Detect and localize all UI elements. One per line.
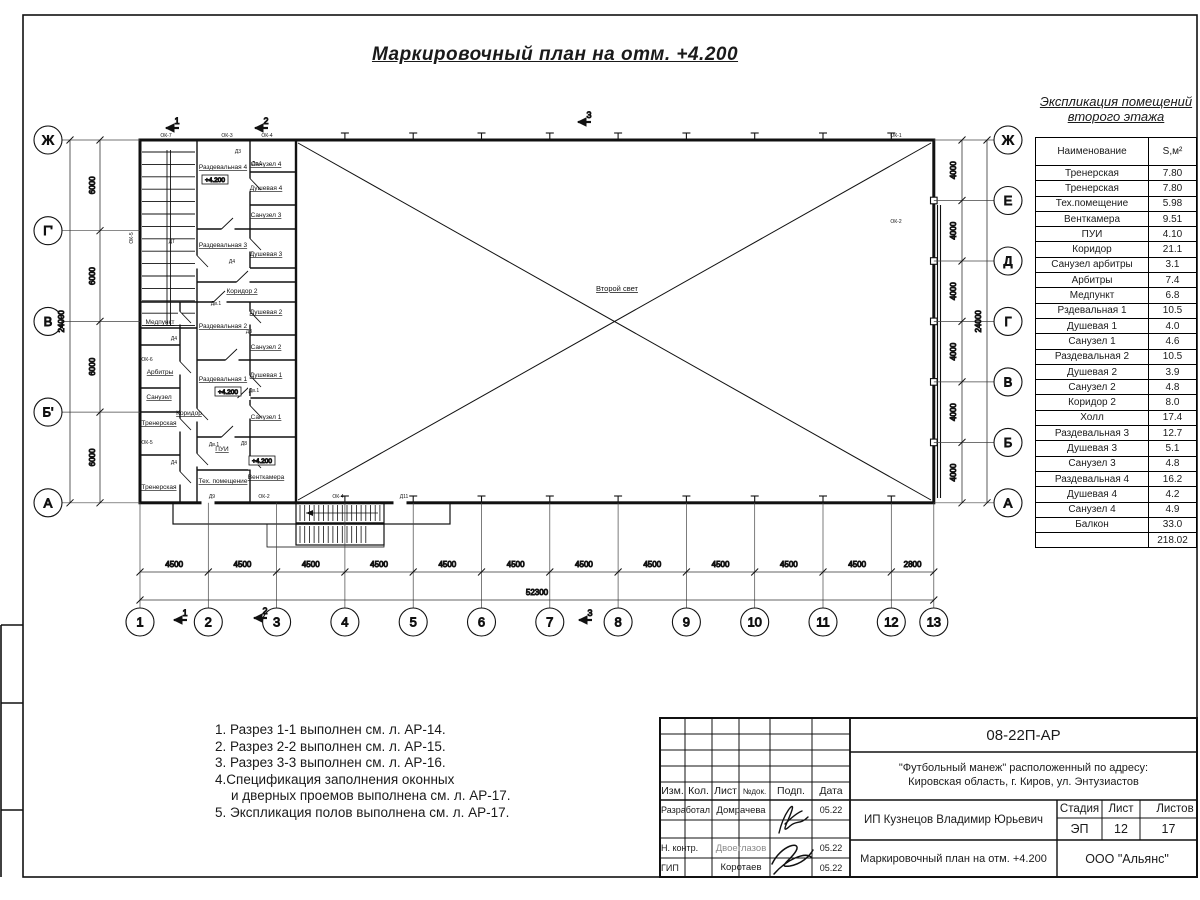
sheet-label: Лист — [1102, 800, 1140, 818]
schedule-room-area: 3.9 — [1148, 365, 1196, 379]
schedule-room-name: Балкон — [1036, 519, 1148, 530]
schedule-room-name: Раздевальная 3 — [1036, 428, 1148, 439]
schedule-col-name: Наименование — [1036, 146, 1148, 157]
schedule-room-area: 7.4 — [1148, 273, 1196, 287]
section-marker-label: 2 — [263, 116, 268, 126]
axis-bubble-label: 8 — [614, 615, 621, 630]
axis-bubble-label: Ж — [42, 133, 54, 148]
axis-bubble-label: Б — [1004, 435, 1013, 450]
doc-title-cell: Маркировочный план на отм. +4.200 — [852, 840, 1055, 877]
opening-tag: ОК-5 — [141, 440, 152, 446]
schedule-row: Санузел 14.6 — [1036, 333, 1196, 348]
opening-tag: Дв.1 — [209, 442, 219, 448]
schedule-room-area: 4.6 — [1148, 334, 1196, 348]
schedule-row: Санузел 34.8 — [1036, 456, 1196, 471]
opening-tag: ОК-2 — [890, 219, 901, 225]
schedule-room-area: 8.0 — [1148, 395, 1196, 409]
opening-tag: Д11 — [400, 494, 409, 500]
dim-label: 4000 — [949, 342, 958, 360]
axis-bubble-label: 11 — [816, 615, 830, 630]
room-label: Медпункт — [145, 319, 174, 326]
note-line: 3. Разрез 3-3 выполнен см. л. АР-16. — [215, 755, 511, 772]
schedule-room-name: Коридор 2 — [1036, 397, 1148, 408]
opening-tag: Д4 — [171, 336, 177, 342]
dim-label: 4500 — [370, 560, 388, 569]
row-developer-name: Домрачева — [713, 800, 769, 820]
row-developer-role: Разработал — [661, 800, 713, 820]
room-label: Душевая 1 — [250, 372, 283, 379]
schedule-room-area: 33.0 — [1148, 518, 1196, 532]
note-line: 5. Экспликация полов выполнена см. л. АР… — [215, 805, 511, 822]
schedule-room-name: Санузел 3 — [1036, 458, 1148, 469]
row-developer-date: 05.22 — [812, 800, 850, 820]
opening-tag: ОК-6 — [141, 357, 152, 363]
schedule-row: Венткамера9.51 — [1036, 211, 1196, 226]
room-label: Раздевальная 2 — [199, 323, 248, 330]
room-label: Раздевальная 3 — [199, 242, 248, 249]
room-label: Душевая 2 — [250, 309, 283, 316]
stairwell — [142, 150, 195, 326]
schedule-room-name: Тех.помещение — [1036, 198, 1148, 209]
room-label: Раздевальная 1 — [199, 376, 248, 383]
schedule-room-area: 5.1 — [1148, 441, 1196, 455]
schedule-row: Раздевальная 416.2 — [1036, 471, 1196, 486]
sheets-value: 17 — [1140, 818, 1197, 840]
schedule-title-line1: Экспликация помещений — [1040, 94, 1192, 109]
schedule-room-area: 17.4 — [1148, 411, 1196, 425]
schedule-row: Тренерская7.80 — [1036, 180, 1196, 195]
axis-bubble-label: 1 — [136, 615, 143, 630]
dim-label: 4500 — [712, 560, 730, 569]
dim-label: 4000 — [949, 463, 958, 481]
room-label: Раздевальная 4 — [199, 164, 248, 171]
schedule-row: Холл17.4 — [1036, 410, 1196, 425]
axis-bubble-label: 2 — [205, 615, 212, 630]
dim-label: 4500 — [234, 560, 252, 569]
axis-bubble-label: Г — [1004, 314, 1011, 329]
opening-tag: ОК-4 — [261, 133, 272, 139]
schedule-row: Коридор 28.0 — [1036, 394, 1196, 409]
dim-label: 4000 — [949, 221, 958, 239]
section-marker-label: 1 — [174, 116, 179, 126]
client-name: ИП Кузнецов Владимир Юрьевич — [852, 800, 1055, 840]
room-label: Санузел 2 — [251, 344, 282, 351]
sheets-label: Листов — [1140, 800, 1200, 818]
schedule-row: Душевая 23.9 — [1036, 364, 1196, 379]
schedule-row: Балкон33.0 — [1036, 517, 1196, 532]
room-label: Санузел 1 — [251, 414, 282, 421]
schedule-room-name: Венткамера — [1036, 214, 1148, 225]
schedule-room-name: Санузел 1 — [1036, 336, 1148, 347]
schedule-row: 218.02 — [1036, 532, 1196, 547]
opening-tag: ОК-2 — [258, 494, 269, 500]
level-mark-label: +4.200 — [218, 389, 238, 396]
schedule-col-area: S,м² — [1148, 138, 1196, 165]
axis-bubble-label: А — [44, 495, 53, 510]
opening-tags: ОК-7ОК-3ОК-4ОК-1ОК-2ОК-5ОК-6ОК-5Д9ОК-2ОК… — [129, 133, 902, 500]
schedule-room-area: 16.2 — [1148, 472, 1196, 486]
opening-tag: Д4 — [229, 259, 235, 265]
axis-bubble-label: Е — [1004, 193, 1013, 208]
opening-tag: ОК-7 — [160, 133, 171, 139]
general-notes: 1. Разрез 1-1 выполнен см. л. АР-14.2. Р… — [215, 722, 511, 821]
opening-tag: Дв.1 — [211, 301, 221, 307]
section-marker-label: 3 — [587, 608, 592, 618]
dim-label: 4000 — [949, 161, 958, 179]
schedule-room-area: 4.10 — [1148, 227, 1196, 241]
schedule-row: Арбитры7.4 — [1036, 272, 1196, 287]
schedule-room-area: 7.80 — [1148, 181, 1196, 195]
schedule-room-name: Душевая 1 — [1036, 321, 1148, 332]
room-label: Душевая 3 — [250, 251, 283, 258]
schedule-room-name: Душевая 2 — [1036, 367, 1148, 378]
room-label: Душевая 4 — [250, 185, 283, 192]
axis-bubble-label: 3 — [273, 615, 280, 630]
schedule-room-area: 4.9 — [1148, 503, 1196, 517]
axis-bubble-label: 4 — [341, 615, 348, 630]
col-list: Лист — [712, 782, 739, 800]
section-marker-label: 3 — [586, 110, 591, 120]
schedule-room-name: Арбитры — [1036, 275, 1148, 286]
dim-label: 4500 — [507, 560, 525, 569]
signature-strokes — [772, 806, 813, 874]
room-label: Санузел — [146, 394, 172, 401]
schedule-header-row: Наименование S,м² — [1036, 138, 1196, 165]
schedule-room-area: 12.7 — [1148, 426, 1196, 440]
dim-total: 24000 — [57, 310, 66, 333]
schedule-row: Рздевальная 110.5 — [1036, 303, 1196, 318]
opening-tag: Д3 — [235, 149, 241, 155]
col-data: Дата — [812, 782, 850, 800]
col-podp: Подп. — [770, 782, 812, 800]
dim-total: 24000 — [974, 310, 983, 333]
drawing-sheet: ЖГ'ВБ'АЖЕДГВБА12345678910111213 60006000… — [0, 0, 1200, 900]
schedule-row: Санузел 24.8 — [1036, 379, 1196, 394]
row-gip-date: 05.22 — [812, 858, 850, 877]
schedule-row: Душевая 35.1 — [1036, 440, 1196, 455]
project-object: "Футбольный манеж" расположенный по адре… — [850, 752, 1197, 800]
axis-bubble-label: 7 — [546, 615, 553, 630]
schedule-title: Экспликация помещений второго этажа — [1032, 94, 1200, 124]
dim-label: 4500 — [165, 560, 183, 569]
room-label: Тренерская — [141, 420, 177, 427]
schedule-row: ПУИ4.10 — [1036, 226, 1196, 241]
schedule-room-name: Санузел 4 — [1036, 504, 1148, 515]
schedule-room-area: 6.8 — [1148, 288, 1196, 302]
dim-label: 4500 — [575, 560, 593, 569]
axis-bubble-label: А — [1004, 495, 1013, 510]
schedule-room-name: Душевая 3 — [1036, 443, 1148, 454]
entrance-stair — [173, 503, 450, 547]
drawing-title: Маркировочный план на отм. +4.200 — [330, 44, 780, 66]
stage-value: ЭП — [1057, 818, 1102, 840]
schedule-row: Санузел арбитры3.1 — [1036, 257, 1196, 272]
door-symbols — [180, 179, 407, 504]
schedule-row: Раздевальная 312.7 — [1036, 425, 1196, 440]
schedule-row: Душевая 44.2 — [1036, 486, 1196, 501]
note-line: 1. Разрез 1-1 выполнен см. л. АР-14. — [215, 722, 511, 739]
opening-tag: Д8 — [241, 441, 247, 447]
section-marker-label: 2 — [262, 606, 267, 616]
opening-tag: ОК-4 — [332, 494, 343, 500]
sheet-value: 12 — [1102, 818, 1140, 840]
schedule-row: Тех.помещение5.98 — [1036, 196, 1196, 211]
schedule-room-name: Рздевальная 1 — [1036, 305, 1148, 316]
axis-bubble-label: Г' — [43, 223, 53, 238]
room-label: Тех. помещение — [199, 478, 248, 485]
dim-label: 4500 — [438, 560, 456, 569]
level-mark-label: +4.200 — [205, 177, 225, 184]
object-line2: Кировская область, г. Киров, ул. Энтузиа… — [850, 775, 1197, 789]
dim-label: 4500 — [302, 560, 320, 569]
schedule-room-area: 10.5 — [1148, 304, 1196, 318]
opening-tag: Дв.1 — [252, 161, 262, 167]
section-marker-label: 1 — [182, 608, 187, 618]
dim-total: 52300 — [526, 588, 549, 597]
row-gip-name: Коротаев — [713, 858, 769, 877]
schedule-room-area: 4.2 — [1148, 487, 1196, 501]
col-izm: Изм. — [660, 782, 685, 800]
stage-label: Стадия — [1057, 800, 1102, 818]
axis-bubble-label: 10 — [747, 615, 761, 630]
room-label: Тренерская — [141, 484, 177, 491]
axis-bubble-label: 13 — [927, 615, 941, 630]
opening-tag: Д4 — [171, 460, 177, 466]
hall-label: Второй свет — [596, 284, 638, 293]
schedule-row: Тренерская7.80 — [1036, 165, 1196, 180]
schedule-room-name: ПУИ — [1036, 229, 1148, 240]
schedule-room-name: Тренерская — [1036, 168, 1148, 179]
dim-label: 4500 — [848, 560, 866, 569]
axis-bubble-label: В — [1004, 374, 1013, 389]
note-line: 2. Разрез 2-2 выполнен см. л. АР-15. — [215, 739, 511, 756]
schedule-title-line2: второго этажа — [1068, 109, 1165, 124]
schedule-room-area: 5.98 — [1148, 197, 1196, 211]
schedule-room-name: Холл — [1036, 412, 1148, 423]
schedule-room-name: Тренерская — [1036, 183, 1148, 194]
schedule-room-name: Раздевальная 2 — [1036, 351, 1148, 362]
room-label: Венткамера — [248, 474, 285, 481]
dim-label: 4500 — [643, 560, 661, 569]
schedule-room-area: 10.5 — [1148, 350, 1196, 364]
schedule-row: Медпункт6.8 — [1036, 287, 1196, 302]
axis-bubble-label: 9 — [683, 615, 690, 630]
schedule-room-area: 218.02 — [1148, 533, 1196, 547]
schedule-room-name: Санузел 2 — [1036, 382, 1148, 393]
schedule-room-name: Санузел арбитры — [1036, 259, 1148, 270]
schedule-room-area: 9.51 — [1148, 212, 1196, 226]
dim-label: 6000 — [88, 176, 97, 194]
dim-label: 4500 — [780, 560, 798, 569]
opening-tag: ОК-5 — [129, 232, 135, 243]
axis-bubble-label: В — [44, 314, 53, 329]
schedule-room-area: 4.8 — [1148, 380, 1196, 394]
room-schedule-table: Наименование S,м² Тренерская7.80Тренерск… — [1035, 137, 1197, 548]
row-ncontr-role: Н. контр. — [661, 838, 713, 858]
schedule-room-area: 4.8 — [1148, 457, 1196, 471]
axis-bubble-label: 12 — [884, 615, 898, 630]
level-mark-label: +4.200 — [252, 458, 272, 465]
schedule-room-area: 4.0 — [1148, 319, 1196, 333]
dim-label: 6000 — [88, 357, 97, 375]
opening-tag: Д9 — [209, 494, 215, 500]
dim-label: 6000 — [88, 267, 97, 285]
company-cell: ООО "Альянс" — [1057, 840, 1197, 877]
col-kol: Кол. — [685, 782, 712, 800]
opening-tag: ДТ — [169, 239, 175, 245]
note-line: и дверных проемов выполнена см. л. АР-17… — [215, 788, 511, 805]
row-ncontr-date: 05.22 — [812, 838, 850, 858]
axis-bubble-label: Б' — [42, 405, 53, 420]
schedule-room-area: 3.1 — [1148, 258, 1196, 272]
schedule-room-name: Раздевальная 4 — [1036, 474, 1148, 485]
row-ncontr-name: Двоеглазов — [713, 838, 769, 858]
note-line: 4.Спецификация заполнения оконных — [215, 772, 511, 789]
axis-bubble-label: 5 — [410, 615, 417, 630]
project-code: 08-22П-АР — [850, 718, 1197, 752]
room-label: Арбитры — [147, 368, 174, 376]
schedule-row: Раздевальная 210.5 — [1036, 349, 1196, 364]
opening-tag: Д3 — [246, 329, 252, 335]
schedule-room-name: Коридор — [1036, 244, 1148, 255]
dim-label: 6000 — [88, 448, 97, 466]
opening-tag: ОК-1 — [890, 133, 901, 139]
opening-tag: Дв.1 — [249, 388, 259, 394]
schedule-room-area: 21.1 — [1148, 242, 1196, 256]
schedule-room-name: Медпункт — [1036, 290, 1148, 301]
axis-bubble-label: Ж — [1002, 133, 1014, 148]
axis-bubble-label: 6 — [478, 615, 485, 630]
col-ndok: №док. — [739, 782, 770, 800]
schedule-row: Санузел 44.9 — [1036, 502, 1196, 517]
schedule-row: Коридор21.1 — [1036, 241, 1196, 256]
opening-tag: ОК-3 — [221, 133, 232, 139]
room-label: Санузел 3 — [251, 212, 282, 219]
dim-label: 4000 — [949, 403, 958, 421]
room-label: Коридор 2 — [226, 288, 257, 295]
schedule-room-name: Душевая 4 — [1036, 489, 1148, 500]
axis-bubble-label: Д — [1004, 254, 1013, 269]
schedule-row: Душевая 14.0 — [1036, 318, 1196, 333]
schedule-room-area: 7.80 — [1148, 166, 1196, 180]
row-gip-role: ГИП — [661, 858, 713, 877]
object-line1: "Футбольный манеж" расположенный по адре… — [850, 761, 1197, 775]
dim-label: 2800 — [904, 560, 922, 569]
dim-label: 4000 — [949, 282, 958, 300]
room-label: Коридор — [176, 410, 202, 417]
